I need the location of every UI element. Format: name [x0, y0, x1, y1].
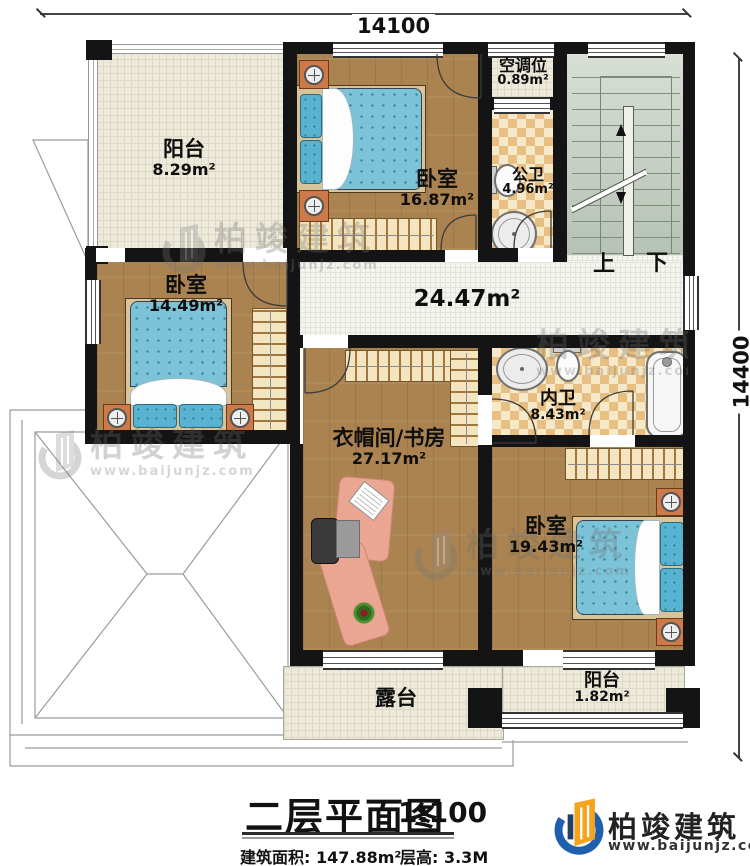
nightstand [299, 60, 329, 89]
title-rule [242, 837, 454, 839]
room-area: 1.82m² [574, 690, 629, 705]
sink [496, 347, 548, 391]
room-label-ac: 空调位 0.89m² [497, 57, 548, 88]
room-label-bath-private: 内卫 8.43m² [530, 389, 585, 424]
window [563, 650, 655, 670]
room-name: 空调位 [497, 57, 548, 74]
window [588, 42, 665, 58]
nightstand-lamp [304, 65, 324, 85]
balcony-railing [88, 44, 98, 252]
room-area: 4.96m² [502, 183, 553, 197]
wall [85, 344, 97, 444]
room-area: 27.17m² [333, 450, 446, 467]
title-rule [242, 832, 454, 835]
pillow [660, 568, 684, 612]
wall [635, 435, 683, 447]
room-label-balcony-top-left: 阳台 8.29m² [152, 138, 215, 178]
room-label-bedroom-bottom-right: 卧室 19.43m² [509, 515, 583, 555]
coat-rack [345, 350, 453, 382]
room-area: 14.49m² [149, 297, 223, 314]
room-name: 阳台 [574, 671, 629, 690]
window [494, 97, 550, 114]
door-opening [590, 435, 635, 447]
wall [478, 445, 492, 652]
room-label-study: 衣帽间/书房 27.17m² [333, 427, 446, 467]
wall [290, 335, 303, 348]
nightstand-lamp [661, 622, 681, 642]
brand-logo-icon [554, 796, 604, 860]
nightstand-lamp [304, 196, 324, 216]
wall [443, 650, 523, 666]
nightstand-lamp [230, 408, 250, 428]
drawing-scale: 1:100 [398, 796, 487, 829]
door-opening [96, 248, 125, 262]
stair-guide [600, 76, 672, 254]
room-name: 内卫 [530, 389, 585, 408]
pillow [179, 404, 223, 428]
nightstand [656, 618, 686, 646]
window [683, 276, 699, 330]
wall [125, 248, 243, 262]
wall [86, 40, 112, 60]
pillow [660, 522, 684, 566]
balcony-railing [88, 44, 287, 54]
room-area: 16.87m² [400, 191, 474, 208]
wardrobe [565, 448, 685, 480]
room-area: 8.29m² [152, 161, 215, 178]
room-area: 0.89m² [497, 74, 548, 88]
room-label-terrace: 露台 [375, 687, 417, 710]
brand-website: www.baijunjz.com [608, 838, 750, 854]
room-label-bath-public: 公卫 4.96m² [502, 166, 553, 197]
window [333, 42, 443, 58]
room-area: 19.43m² [509, 538, 583, 555]
wall [348, 335, 482, 348]
room-name: 衣帽间/书房 [333, 427, 446, 450]
stair-stringer [623, 106, 634, 256]
wall [492, 435, 590, 447]
room-name: 卧室 [400, 168, 474, 191]
wall-post [468, 688, 502, 728]
nightstand-lamp [661, 492, 681, 512]
window [323, 650, 443, 670]
door-opening [243, 248, 287, 262]
wall [283, 42, 297, 262]
room-area: 8.43m² [530, 408, 585, 423]
room-label-bedroom-top: 卧室 16.87m² [400, 168, 474, 208]
plant [352, 601, 376, 625]
toilet [556, 350, 580, 382]
nightstand [103, 404, 131, 432]
pillow [300, 94, 322, 138]
watermark-url: www.baijunjz.com [90, 465, 255, 478]
wall [482, 335, 695, 348]
wall [85, 430, 300, 444]
dimension-top-value: 14100 [352, 14, 435, 38]
room-name: 阳台 [152, 138, 215, 161]
watermark-logo-icon [38, 428, 82, 484]
room-label-bedroom-left: 卧室 14.49m² [149, 274, 223, 314]
monitor [336, 520, 360, 558]
bed-sheet [634, 520, 660, 615]
corridor-area-label: 24.47m² [414, 286, 521, 312]
wall [283, 250, 445, 262]
office-chair [311, 518, 339, 564]
dimension-right-value: 14400 [730, 330, 750, 413]
wall [553, 42, 567, 262]
wall [478, 97, 494, 110]
floorplan-canvas: 阳台 8.29m² 卧室 16.87m² 空调位 0.89m² 公卫 4.96m… [0, 0, 750, 866]
floor-height-label: 层高: 3.3M [400, 844, 488, 866]
door-opening [478, 395, 492, 445]
faucet-icon [662, 357, 672, 367]
wall [683, 42, 695, 276]
room-name: 卧室 [509, 515, 583, 538]
room-name: 露台 [375, 687, 417, 710]
wall [478, 248, 518, 262]
room-label-balcony-bottom-right: 阳台 1.82m² [574, 671, 629, 706]
balcony-railing-window [502, 712, 683, 729]
room-name: 卧室 [149, 274, 223, 297]
wall [478, 42, 492, 262]
wall [683, 330, 695, 666]
bed-sheet [130, 378, 227, 406]
pillow [300, 140, 322, 184]
door-opening [523, 650, 563, 666]
wall [290, 650, 323, 666]
wardrobe [299, 218, 437, 252]
window [85, 280, 101, 344]
wardrobe [252, 308, 287, 432]
building-area-label: 建筑面积: 147.88m² [240, 844, 401, 866]
door-opening [303, 335, 348, 348]
wall [655, 650, 695, 666]
pillow [133, 404, 177, 428]
wall [290, 444, 303, 665]
nightstand-lamp [107, 408, 127, 428]
bathtub [646, 351, 688, 439]
stairs-up-label: 上 [593, 246, 615, 278]
stairs-down-label: 下 [646, 245, 668, 277]
wall [478, 348, 492, 395]
nightstand [299, 190, 329, 222]
nightstand [226, 404, 254, 432]
nightstand [656, 488, 686, 516]
room-name: 公卫 [502, 166, 553, 183]
door-opening [518, 248, 553, 262]
